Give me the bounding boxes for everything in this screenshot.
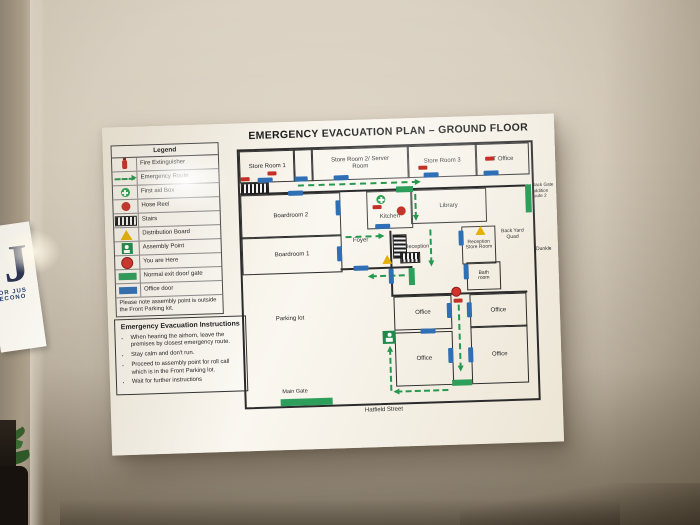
room-bathroom: Bath room [466,261,501,290]
fire-extinguisher-icon [485,156,494,160]
fire-extinguisher-icon [121,160,126,169]
room-label: Office [415,309,431,316]
legend-label: Stairs [139,214,220,223]
legend-icon-cell [116,284,141,298]
office-door-icon [337,246,342,261]
instruction-item: Stay calm and don't run. [131,349,242,360]
room-boardroom-1: Boardroom 1 [241,234,342,275]
office-door-icon [119,287,137,295]
legend-note: Please note assembly point is outside th… [116,295,223,316]
instruction-item: When hearing the airhorn, leave the prem… [130,332,241,350]
office-door-icon [484,170,499,175]
office-door-icon [448,348,453,363]
room-label: Kitchen [380,213,400,220]
room-label: IT Office [491,156,514,163]
exit-door-icon [409,268,416,285]
room-label: Office [492,351,508,358]
room-office-2: Office [469,292,527,328]
room-label: Office [417,355,433,362]
room-label: Bath room [474,270,494,282]
legend-label: Normal exit door/ gate [141,270,222,279]
room-store-room-3: Store Room 3 [407,144,478,178]
legend-label: Fire Extinguisher [137,158,218,167]
hose-reel-icon [121,202,130,211]
fire-extinguisher-icon [454,299,463,303]
fire-extinguisher-icon [241,177,250,181]
office-door-icon [258,177,273,182]
room-store-room-2-server: Store Room 2/ Server Room [311,146,410,181]
back-gate-note: Back Gate addition route 2 [532,182,557,199]
office-door-icon [295,176,308,181]
legend-box: Legend Fire Extinguisher Emergency Route… [111,142,224,317]
legend-icon-cell [115,270,140,284]
room-office-3: Office [395,331,455,387]
legend-label: You are Here [140,256,221,265]
office-door-icon [468,347,473,362]
room-office-4: Office [470,324,529,384]
main-gate-label: Main Gate [282,388,308,395]
legend-icon-cell [113,200,138,214]
office-door-icon [335,200,340,215]
office-door-icon [424,172,439,177]
bottom-right-shadow [460,483,700,525]
normal-exit-door-icon [119,273,137,281]
fire-extinguisher-icon [418,166,427,170]
room-label: Boardroom 2 [273,212,308,220]
hatfield-street-label: Hatfield Street [365,406,403,413]
legend-icon-cell [114,228,139,242]
instructions-box: Emergency Evacuation Instructions When h… [114,315,248,395]
first-aid-box-icon [120,188,129,197]
office-door-icon [375,224,390,229]
office-door-icon [458,230,463,245]
fire-extinguisher-icon [373,205,382,209]
stairs-icon [241,183,269,195]
legend-label: Distribution Board [139,228,220,237]
legend-icon-cell [114,214,139,228]
room-boardroom-2: Boardroom 2 [240,192,341,239]
legend-icon-cell [112,172,137,186]
emergency-route-icon [115,177,135,180]
legend-icon-cell [115,242,140,256]
exit-door-icon [452,379,472,386]
room-label: Office [491,307,507,314]
stairs-icon [400,252,420,264]
light-glint [2,230,60,274]
side-street-label: Dunkle [536,246,552,252]
photo-of-evacuation-plan: J OR JUS ECONO EMERGENCY EVACUATION PLAN… [0,0,700,525]
evacuation-plan-poster: EMERGENCY EVACUATION PLAN – GROUND FLOOR… [102,114,564,456]
legend-icon-cell [115,256,140,270]
room-library: Library [410,188,487,224]
distribution-board-icon [120,229,132,239]
instructions-title: Emergency Evacuation Instructions [119,320,241,332]
back-gate-icon [525,184,532,212]
dark-object-bottom-left [0,466,28,525]
exit-door-icon [396,186,413,193]
room-label: Store Room 2/ Server Room [325,156,395,171]
office-door-icon [334,175,349,180]
room-label: Store Room 3 [424,157,461,165]
you-are-here-icon [121,256,133,268]
legend-label: Office door [141,284,222,293]
legend-label: Hose Reel [138,200,219,209]
room-label: Boardroom 1 [275,251,310,259]
stairs-icon [115,215,137,226]
office-door-icon [447,303,452,318]
legend-label: Emergency Route [137,172,218,181]
assembly-point-icon [121,243,132,254]
office-door-icon [353,265,368,270]
poster-title: EMERGENCY EVACUATION PLAN – GROUND FLOOR [230,121,546,143]
area-back-yard-quad: Back Yard Quad [495,228,529,240]
distribution-board-icon [475,226,485,235]
legend-label: First aid Box [138,186,219,195]
room-office-1: Office [393,295,452,331]
area-foyer: Foyer [344,237,378,245]
fire-extinguisher-icon [267,171,276,175]
office-door-icon [467,302,472,317]
assembly-point-icon [382,331,395,344]
floor-plan: Store Room 1 Store Room 2/ Server Room S… [237,140,555,418]
distribution-board-icon [382,255,392,264]
room-label: Store Room 1 [249,163,286,171]
office-door-icon [389,269,394,284]
legend-icon-cell [113,186,138,200]
instruction-item: Wait for further instructions [132,376,243,387]
instruction-item: Proceed to assembly point for roll call … [131,359,242,377]
office-door-icon [463,264,468,279]
office-door-icon [288,190,303,195]
office-door-icon [420,328,435,333]
room-label: Library [439,202,458,209]
legend-label: Assembly Point [140,242,221,251]
room-label: Reception Store Room [465,239,493,251]
legend-icon-cell [112,158,137,172]
instructions-list: When hearing the airhorn, leave the prem… [119,332,243,388]
